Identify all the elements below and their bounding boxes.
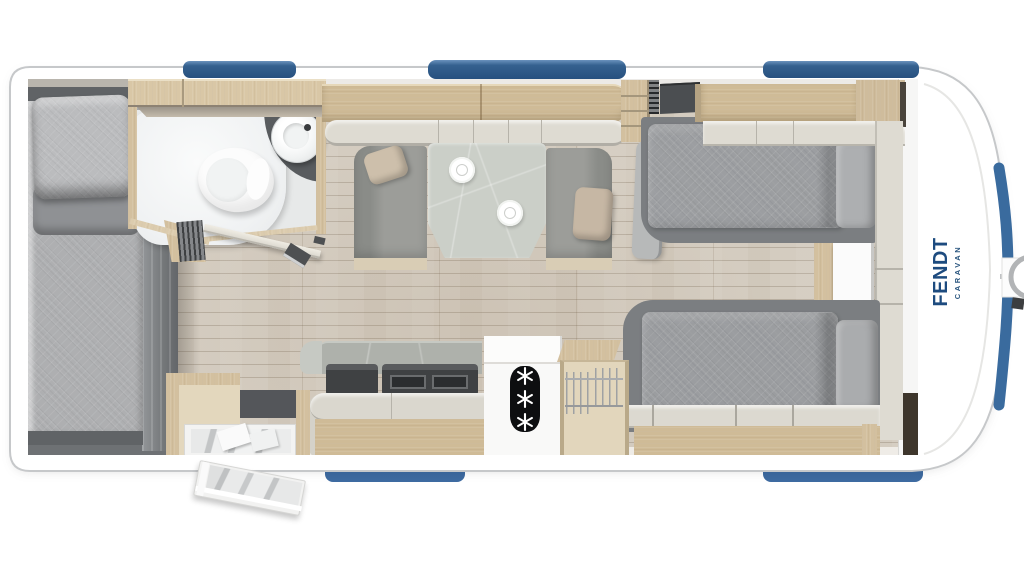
svg-text:FENDT: FENDT <box>930 237 952 306</box>
svg-text:CARAVAN: CARAVAN <box>953 245 962 300</box>
